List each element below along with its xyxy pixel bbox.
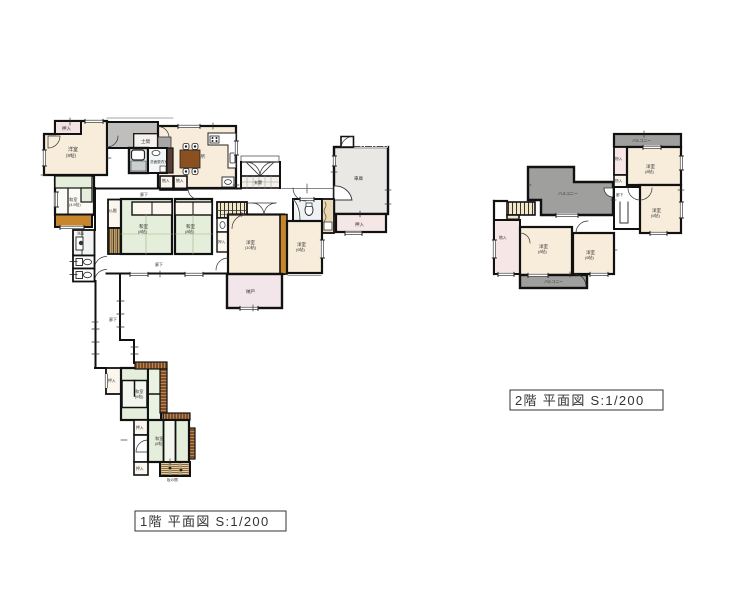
svg-text:(8帖): (8帖) — [645, 168, 655, 174]
svg-text:押入: 押入 — [218, 239, 226, 244]
svg-text:(8帖): (8帖) — [185, 228, 195, 234]
svg-text:(8帖): (8帖) — [138, 228, 148, 234]
svg-text:和室: 和室 — [135, 388, 143, 395]
svg-text:廊下: 廊下 — [140, 191, 148, 197]
svg-text:バルコニー: バルコニー — [632, 138, 651, 143]
svg-text:押入: 押入 — [136, 466, 144, 471]
svg-text:(4.5帖): (4.5帖) — [69, 202, 81, 207]
svg-text:押入: 押入 — [136, 425, 144, 430]
svg-text:(6帖): (6帖) — [155, 441, 164, 446]
svg-text:(6帖): (6帖) — [585, 254, 595, 260]
svg-text:和室: 和室 — [155, 435, 163, 442]
svg-text:板の間: 板の間 — [167, 477, 178, 482]
svg-text:押入: 押入 — [62, 125, 71, 132]
svg-text:(6帖): (6帖) — [651, 212, 661, 218]
svg-text:廊下: 廊下 — [155, 261, 163, 267]
svg-text:洋室: 洋室 — [68, 146, 78, 153]
svg-text:仏間: 仏間 — [109, 208, 117, 213]
svg-text:(6帖): (6帖) — [135, 394, 144, 399]
svg-text:物入: 物入 — [176, 178, 184, 183]
svg-text:廊下: 廊下 — [109, 316, 117, 322]
svg-text:2階 平面図 S:1/200: 2階 平面図 S:1/200 — [515, 393, 644, 408]
svg-text:土間: 土間 — [141, 138, 150, 145]
svg-text:(6帖): (6帖) — [296, 246, 306, 252]
svg-text:洗面: 洗面 — [77, 231, 84, 236]
svg-text:車庫: 車庫 — [354, 175, 363, 182]
svg-text:廊下: 廊下 — [616, 192, 624, 197]
svg-text:押入: 押入 — [108, 378, 116, 383]
svg-text:バルコニー: バルコニー — [544, 279, 563, 284]
svg-text:押入: 押入 — [355, 221, 364, 228]
svg-text:物入: 物入 — [615, 178, 623, 183]
svg-text:バルコニー: バルコニー — [558, 191, 578, 196]
svg-text:物入: 物入 — [615, 156, 623, 161]
svg-text:物入: 物入 — [162, 178, 170, 183]
svg-text:玄関: 玄関 — [254, 179, 262, 185]
svg-text:1階 平面図 S:1/200: 1階 平面図 S:1/200 — [140, 514, 269, 529]
svg-text:物入: 物入 — [499, 235, 507, 240]
svg-text:(10帖): (10帖) — [245, 244, 257, 250]
svg-text:納戸: 納戸 — [246, 288, 255, 295]
svg-text:洗面脱衣室: 洗面脱衣室 — [150, 159, 168, 164]
svg-text:和室: 和室 — [69, 196, 77, 203]
svg-text:(8帖): (8帖) — [66, 152, 77, 159]
svg-text:(8帖): (8帖) — [538, 248, 548, 254]
